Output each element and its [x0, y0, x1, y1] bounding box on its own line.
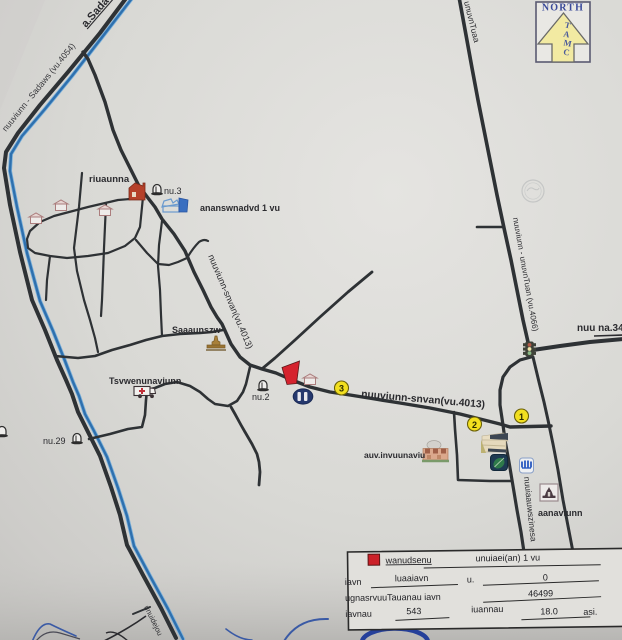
svg-text:unuiaei(an) 1 vu: unuiaei(an) 1 vu [476, 552, 541, 563]
svg-text:Tsvwenunaviunn: Tsvwenunaviunn [109, 376, 181, 386]
svg-text:nu.3: nu.3 [164, 186, 182, 196]
svg-text:asi.: asi. [583, 607, 597, 617]
svg-text:18.0: 18.0 [540, 606, 558, 616]
svg-text:nuu na.340: nuu na.340 [577, 323, 622, 334]
svg-text:2: 2 [472, 420, 477, 430]
svg-text:aanaviunn: aanaviunn [538, 508, 583, 518]
svg-text:Saaaunszw: Saaaunszw [172, 325, 222, 335]
svg-text:iavnau: iavnau [345, 609, 372, 619]
svg-text:iuannau: iuannau [471, 604, 503, 614]
svg-text:iavn: iavn [345, 577, 362, 587]
svg-text:u.: u. [467, 574, 475, 584]
svg-text:0: 0 [543, 572, 548, 582]
svg-text:auv.invuunaviu: auv.invuunaviu [364, 450, 425, 460]
svg-text:ugnasrvuuTauanau iavn: ugnasrvuuTauanau iavn [345, 592, 441, 603]
svg-text:luaaiavn: luaaiavn [395, 573, 429, 583]
svg-text:46499: 46499 [528, 588, 553, 598]
svg-text:nu.2: nu.2 [252, 392, 270, 402]
svg-text:riuaunna: riuaunna [89, 174, 130, 185]
svg-text:3: 3 [339, 384, 344, 394]
svg-text:543: 543 [406, 606, 421, 616]
svg-text:wanudsenu: wanudsenu [385, 555, 432, 566]
svg-text:NORTH: NORTH [542, 3, 584, 14]
svg-text:ananswnadvd 1 vu: ananswnadvd 1 vu [200, 203, 280, 213]
svg-text:1: 1 [519, 412, 524, 422]
svg-text:nu.29: nu.29 [43, 436, 66, 446]
